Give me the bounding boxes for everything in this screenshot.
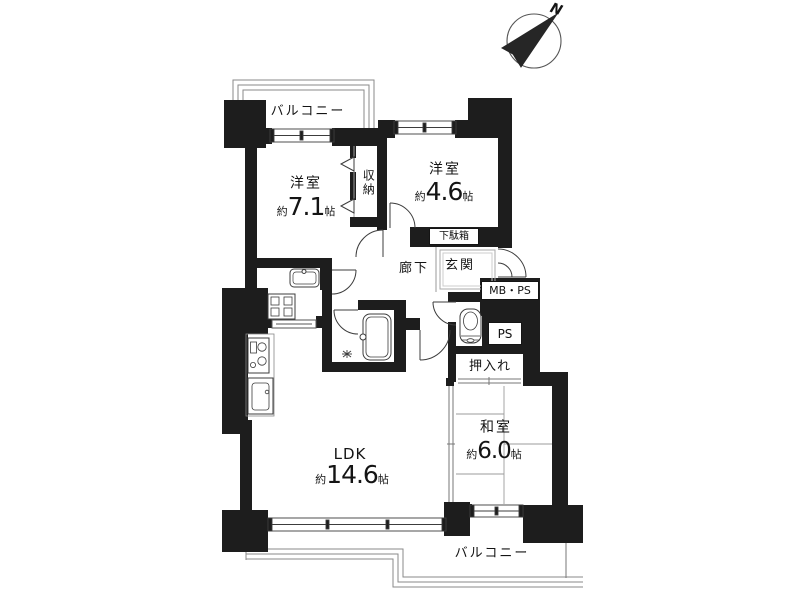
wall-corridor-south	[394, 318, 420, 330]
size-value: 6.0	[477, 438, 511, 464]
wall-storage-divider	[377, 138, 387, 230]
size-value: 4.6	[426, 177, 463, 206]
wall-pillar-bottom-right	[523, 505, 583, 543]
door-toilet	[433, 302, 456, 325]
wall-room1-top-b	[332, 128, 378, 146]
wall-pillar-bottom-left	[222, 510, 268, 552]
floorplan-drawing	[0, 0, 800, 600]
wall-bath-left	[322, 290, 332, 370]
washing-machine-pan-icon	[268, 294, 295, 319]
wall-corridor-stub	[320, 262, 332, 290]
partition-ldk-washitsu	[447, 386, 455, 502]
door-room2	[390, 203, 415, 228]
size-unit: 帖	[511, 448, 522, 461]
door-washroom	[332, 270, 356, 294]
door-ldk	[420, 330, 450, 360]
folding-door-triangle	[341, 199, 354, 213]
size-prefix: 約	[277, 205, 288, 218]
floorplan: N バルコニー 洋室 約7.1帖 収納 洋室 約4.6帖 下駄箱 玄関 廊下 M…	[0, 0, 800, 600]
size-unit: 帖	[378, 473, 389, 486]
window-ldk	[268, 518, 446, 531]
wall-storage-bottom	[350, 217, 387, 227]
door-bath	[334, 310, 358, 334]
room-label-western-room-1: 洋室	[290, 177, 322, 192]
shower-head-icon	[342, 350, 352, 358]
wall-room1-top-a	[245, 128, 272, 144]
window-room2	[394, 121, 456, 134]
wall-storage-stub-b	[350, 172, 356, 200]
label-box-mb-ps: MB・PS	[481, 281, 539, 300]
sliding-door-washroom	[272, 320, 316, 328]
size-unit: 帖	[462, 190, 473, 203]
wall-partition-stub-top	[446, 378, 454, 386]
sliding-door-oshiire	[458, 377, 521, 385]
room-label-western-room-2: 洋室	[429, 163, 461, 178]
room-label-hallway: 廊下	[399, 262, 429, 276]
size-prefix: 約	[415, 190, 426, 203]
wall-bath-right	[394, 300, 406, 372]
fixtures	[246, 269, 481, 416]
wall-washroom-door-stub-r	[316, 316, 322, 328]
wall-washroom-north	[245, 258, 332, 268]
label-box-ps: PS	[488, 322, 522, 345]
wall-bath-bottom	[322, 362, 406, 372]
room-label-japanese-room: 和室	[480, 421, 512, 436]
toilet-icon	[460, 309, 481, 343]
wall-jog-right	[523, 372, 568, 386]
room-label-balcony-top: バルコニー	[271, 105, 346, 119]
wall-storage-stub-a	[350, 146, 356, 158]
door-entrance	[498, 249, 526, 277]
folding-door-triangle	[341, 157, 354, 171]
size-unit: 帖	[324, 205, 335, 218]
room-size-japanese-room: 約6.0帖	[466, 439, 522, 463]
size-value: 7.1	[288, 192, 325, 221]
room-label-closet: 押入れ	[469, 360, 511, 374]
wall-oshiire-left	[448, 354, 456, 382]
size-value: 14.6	[326, 460, 378, 489]
compass-north-arrow-icon	[502, 14, 561, 68]
wall-genkan-south	[448, 292, 482, 302]
label-box-shoe-cabinet: 下駄箱	[429, 228, 479, 245]
room-label-balcony-bottom: バルコニー	[455, 547, 530, 561]
size-prefix: 約	[466, 448, 477, 461]
wall-room2-top-b	[455, 120, 470, 138]
room-label-entrance: 玄関	[445, 259, 475, 273]
gas-stove-icon	[248, 338, 269, 373]
room-size-ldk: 約14.6帖	[315, 462, 389, 488]
room-size-western-room-1: 約7.1帖	[277, 194, 336, 220]
room-label-storage: 収納	[362, 169, 375, 197]
wall-washitsu-right	[552, 386, 568, 506]
wall-ldk-left	[240, 420, 252, 512]
wall-room2-top-a	[378, 120, 395, 138]
bathtub-icon	[360, 314, 391, 360]
window-room1	[270, 129, 334, 142]
washbasin-icon	[290, 269, 319, 287]
wall-washitsu-window-stub	[455, 504, 472, 517]
balcony-bottom-railing	[246, 543, 583, 587]
size-prefix: 約	[315, 473, 326, 486]
room-size-western-room-2: 約4.6帖	[415, 179, 474, 205]
wall-pillar-top-right	[468, 98, 512, 138]
door-room1	[356, 230, 383, 257]
window-washitsu	[470, 505, 523, 517]
wall-kitchen-left	[222, 322, 248, 434]
wall-oshiire-top	[448, 346, 523, 354]
